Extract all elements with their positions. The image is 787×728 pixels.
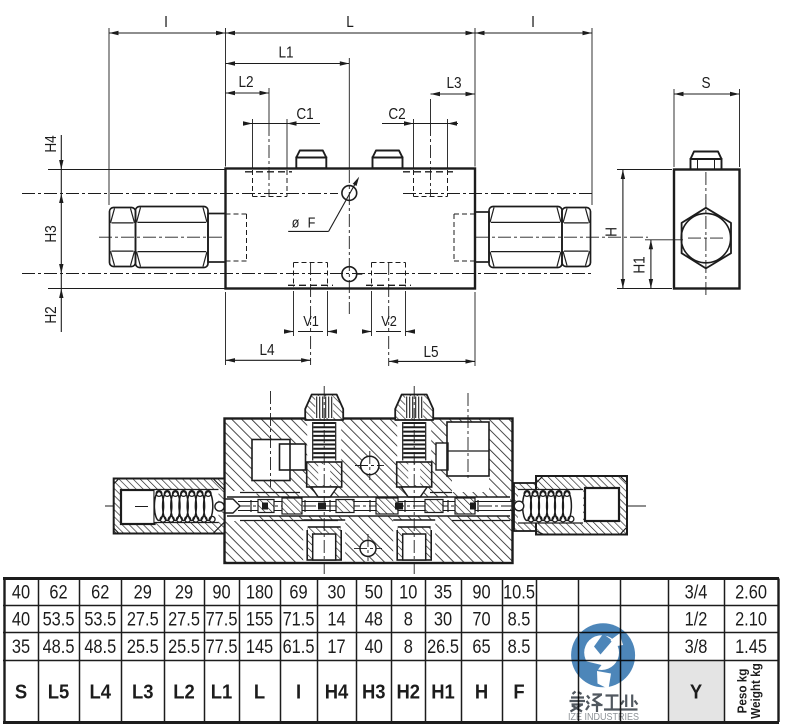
svg-text:77.5: 77.5	[206, 608, 238, 630]
svg-text:L4: L4	[89, 681, 111, 704]
svg-text:C2: C2	[388, 106, 405, 123]
svg-text:29: 29	[134, 581, 152, 603]
svg-text:L: L	[254, 681, 265, 704]
svg-text:I: I	[164, 14, 168, 31]
svg-text:10: 10	[399, 581, 417, 603]
svg-text:V2: V2	[381, 312, 397, 329]
svg-text:L4: L4	[259, 342, 274, 359]
svg-text:90: 90	[472, 581, 490, 603]
svg-text:29: 29	[175, 581, 193, 603]
svg-text:40: 40	[365, 636, 383, 658]
svg-text:1.45: 1.45	[735, 636, 767, 658]
svg-text:ø: ø	[292, 213, 300, 230]
svg-text:L1: L1	[278, 45, 293, 62]
svg-text:8: 8	[404, 636, 413, 658]
svg-text:14: 14	[327, 608, 345, 630]
svg-text:L3: L3	[132, 681, 154, 704]
svg-text:H2: H2	[43, 306, 60, 323]
svg-text:H1: H1	[632, 256, 649, 273]
svg-text:L2: L2	[238, 74, 253, 91]
svg-text:H: H	[475, 681, 488, 704]
svg-text:53.5: 53.5	[43, 608, 75, 630]
svg-text:26.5: 26.5	[427, 636, 459, 658]
svg-text:8.5: 8.5	[508, 636, 531, 658]
svg-text:35: 35	[434, 581, 452, 603]
svg-text:180: 180	[246, 581, 273, 603]
svg-text:50: 50	[365, 581, 383, 603]
svg-text:27.5: 27.5	[127, 608, 159, 630]
svg-text:48.5: 48.5	[43, 636, 75, 658]
svg-text:70: 70	[472, 608, 490, 630]
svg-text:F: F	[308, 213, 316, 230]
svg-text:H2: H2	[396, 681, 420, 704]
svg-text:77.5: 77.5	[206, 636, 238, 658]
svg-text:90: 90	[212, 581, 230, 603]
svg-text:S: S	[701, 75, 710, 92]
svg-text:L1: L1	[211, 681, 233, 704]
svg-text:L: L	[346, 14, 354, 31]
svg-text:155: 155	[246, 608, 273, 630]
svg-text:3/4: 3/4	[685, 581, 708, 603]
svg-text:40: 40	[12, 608, 30, 630]
svg-text:Weight kg: Weight kg	[748, 663, 763, 719]
svg-text:48: 48	[365, 608, 383, 630]
svg-text:3/8: 3/8	[685, 636, 708, 658]
svg-text:25.5: 25.5	[127, 636, 159, 658]
svg-text:69: 69	[289, 581, 307, 603]
svg-text:62: 62	[91, 581, 109, 603]
svg-text:H4: H4	[43, 135, 60, 152]
svg-text:H1: H1	[431, 681, 455, 704]
svg-text:30: 30	[434, 608, 452, 630]
svg-text:65: 65	[472, 636, 490, 658]
svg-text:L2: L2	[173, 681, 195, 704]
svg-text:8: 8	[404, 608, 413, 630]
svg-text:L5: L5	[48, 681, 70, 704]
svg-text:H3: H3	[43, 225, 60, 242]
svg-text:61.5: 61.5	[283, 636, 315, 658]
svg-text:62: 62	[49, 581, 67, 603]
svg-text:27.5: 27.5	[168, 608, 200, 630]
svg-text:145: 145	[246, 636, 273, 658]
svg-text:1/2: 1/2	[685, 608, 708, 630]
svg-text:30: 30	[327, 581, 345, 603]
svg-text:40: 40	[12, 581, 30, 603]
svg-text:17: 17	[327, 636, 345, 658]
svg-text:F: F	[513, 681, 524, 704]
svg-text:8.5: 8.5	[508, 608, 531, 630]
svg-text:71.5: 71.5	[283, 608, 315, 630]
svg-text:I: I	[531, 14, 535, 31]
svg-text:I: I	[296, 681, 301, 704]
svg-text:IZE INDUSTRIES: IZE INDUSTRIES	[568, 711, 639, 722]
svg-text:2.10: 2.10	[735, 608, 767, 630]
svg-text:35: 35	[12, 636, 30, 658]
svg-text:2.60: 2.60	[735, 581, 767, 603]
svg-text:V1: V1	[303, 312, 319, 329]
svg-text:H: H	[604, 227, 621, 237]
svg-text:S: S	[15, 681, 27, 704]
svg-text:H3: H3	[362, 681, 386, 704]
svg-text:L3: L3	[446, 75, 461, 92]
svg-text:H4: H4	[325, 681, 349, 704]
svg-text:25.5: 25.5	[168, 636, 200, 658]
svg-text:C1: C1	[296, 106, 313, 123]
svg-text:48.5: 48.5	[84, 636, 116, 658]
svg-text:L5: L5	[423, 344, 438, 361]
svg-text:53.5: 53.5	[84, 608, 116, 630]
svg-text:10.5: 10.5	[503, 581, 535, 603]
svg-text:Y: Y	[690, 681, 702, 704]
